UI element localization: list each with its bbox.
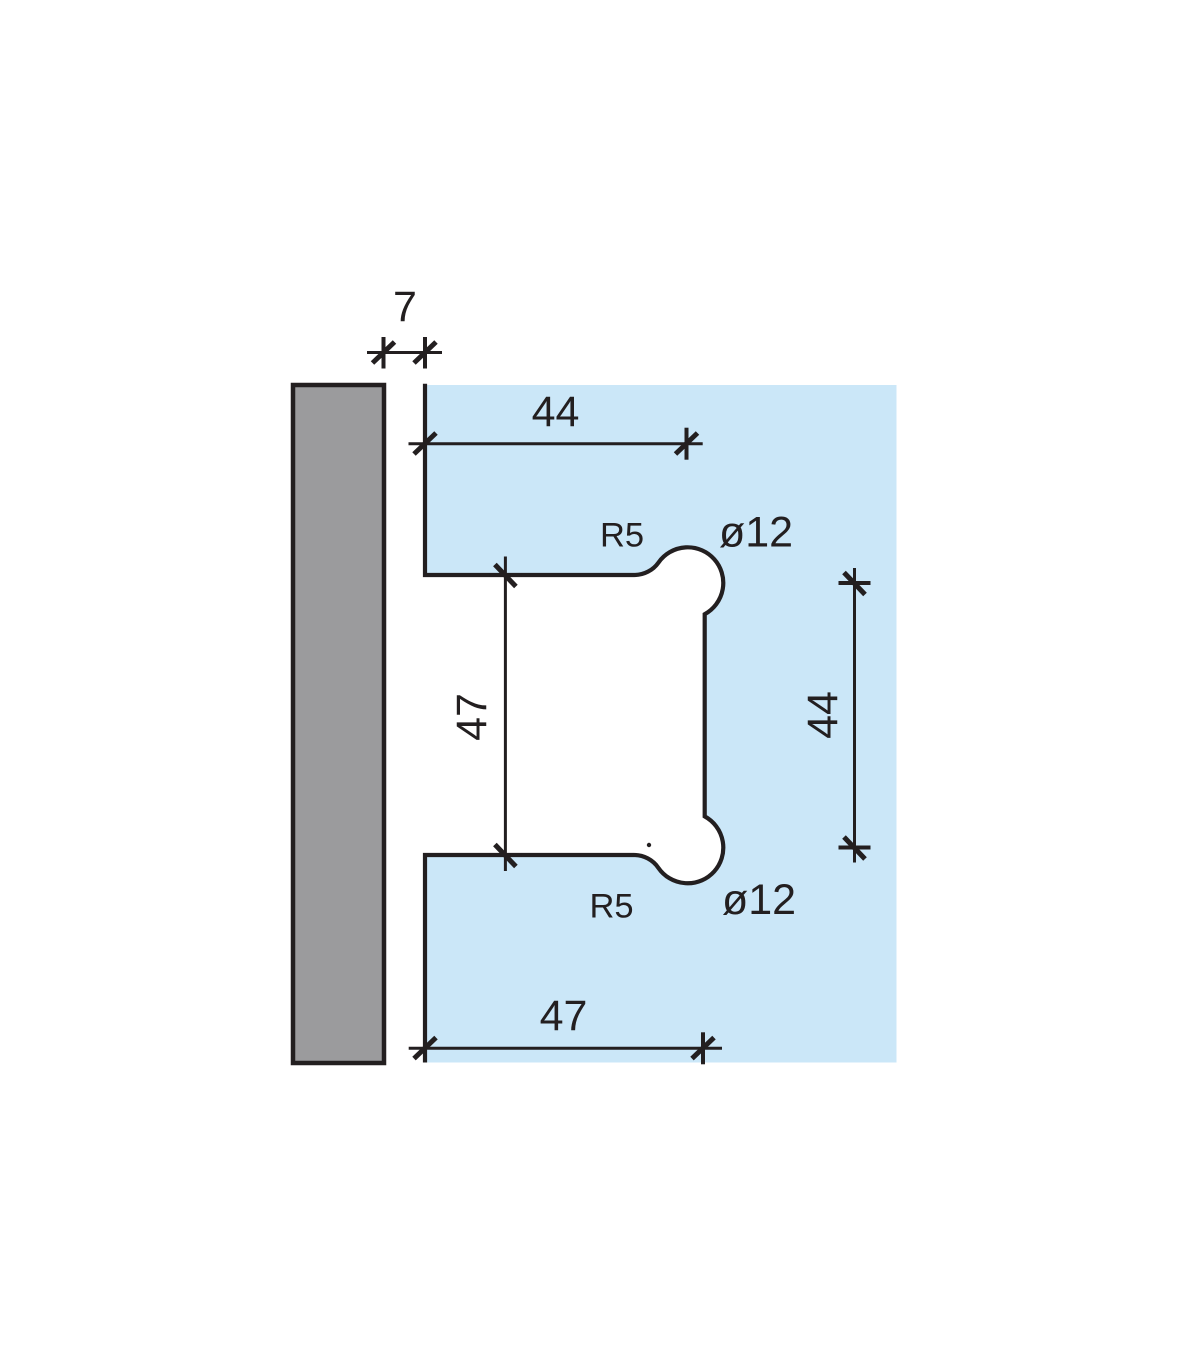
svg-text:47: 47 (448, 693, 496, 741)
svg-text:47: 47 (540, 992, 588, 1040)
svg-text:44: 44 (532, 388, 580, 436)
svg-text:ø12: ø12 (719, 509, 793, 557)
svg-text:R5: R5 (600, 517, 644, 555)
svg-text:7: 7 (393, 283, 417, 331)
svg-text:44: 44 (799, 691, 847, 739)
svg-text:ø12: ø12 (722, 876, 796, 924)
svg-text:R5: R5 (589, 887, 633, 925)
